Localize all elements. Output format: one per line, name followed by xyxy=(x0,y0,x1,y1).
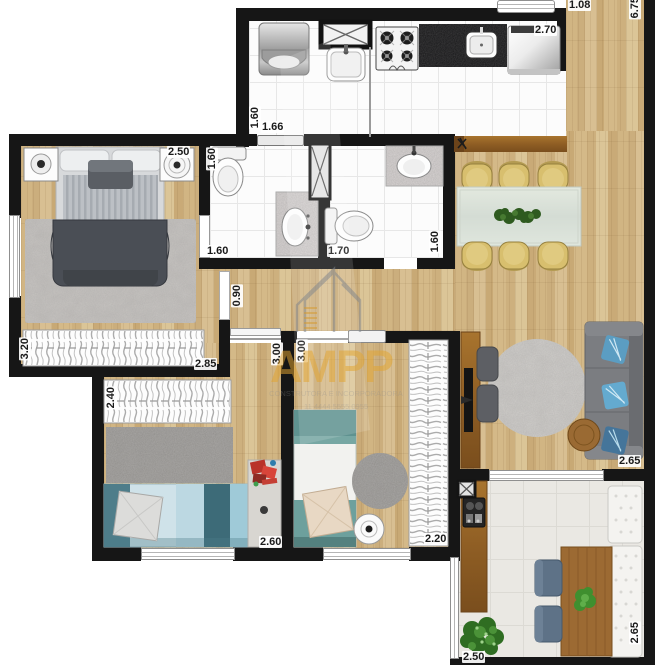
svg-text:CONSTRUTORA E INCORPORADORA: CONSTRUTORA E INCORPORADORA xyxy=(269,389,403,398)
svg-text:11 4444 5555 0955: 11 4444 5555 0955 xyxy=(304,402,368,411)
svg-text:AMPP: AMPP xyxy=(270,341,393,392)
